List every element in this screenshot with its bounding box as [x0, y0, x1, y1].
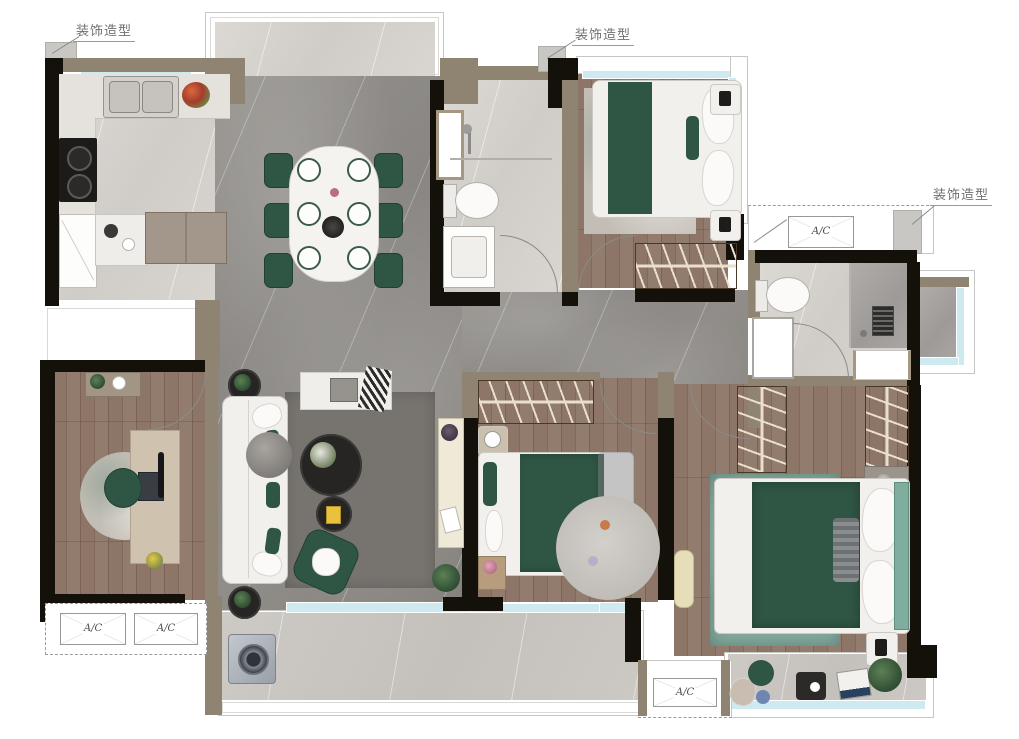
balcony-tray-cup: [810, 682, 820, 692]
shower-handle: [860, 330, 867, 337]
side-table-2-book: [326, 506, 341, 524]
bath1-sink: [451, 236, 487, 278]
balcony-laptop: [836, 668, 872, 700]
deco-annotation-2: 装饰造型: [572, 24, 634, 46]
master-nightstand-lamp: [875, 639, 887, 656]
master-headboard: [894, 482, 909, 630]
armchair-cushion: [312, 548, 340, 576]
bedroom1-window-top: [582, 70, 734, 79]
shower-glass-line: [849, 263, 851, 348]
bedroom2-toy-1: [600, 520, 610, 530]
balcony-knit-ball: [756, 690, 770, 704]
wall-bed2-north: [478, 372, 600, 380]
wall-study-top: [53, 360, 205, 372]
sofa-green-pillow-2: [266, 482, 280, 508]
bedroom2-pillow-white: [485, 510, 503, 552]
wall-master-corner-block: [907, 645, 937, 678]
stove-burner-1: [67, 146, 92, 171]
dining-chair-3: [264, 253, 293, 288]
ac-label-left-2: A/C: [155, 624, 177, 634]
bedroom2-lamp: [484, 431, 501, 448]
sideboard-tray: [330, 378, 358, 402]
deco-molding-3: [893, 210, 922, 254]
wall-bed2-master-tan: [658, 372, 674, 418]
toilet1-bowl: [455, 182, 499, 219]
study-lamp: [158, 452, 164, 498]
wall-bed2-west: [462, 418, 478, 602]
nightstand1-lamp: [719, 91, 731, 106]
balcony-bath-floor: [917, 287, 956, 357]
wall-balcony-left-pillar: [205, 596, 222, 715]
balcony-bath-ledge: [917, 277, 969, 287]
wall-bathroom1-top: [444, 66, 548, 80]
plate-2: [347, 158, 371, 182]
bathroom2-window: [853, 350, 911, 380]
bay-top-floor: [215, 22, 435, 78]
plate-3: [297, 202, 321, 226]
balcony-bath-glass-bottom: [917, 357, 959, 366]
wall-bath1-bed1-divider: [562, 80, 578, 292]
master-wardrobe-2: [865, 386, 909, 473]
sofa-seat-line: [248, 400, 249, 578]
kitchen-counter-bottom: [95, 214, 147, 266]
wall-bath1-bottom: [444, 292, 500, 306]
bedroom2-rug: [556, 496, 660, 600]
balcony-left-floor: [222, 612, 638, 700]
tv-console-plant: [441, 424, 458, 441]
balcony-left-outer-line: [222, 702, 640, 713]
duct-niche: [47, 308, 205, 362]
bedroom2-pillow-green: [483, 462, 497, 506]
study-console-plant: [90, 374, 105, 389]
wall-bed2-west-tan: [462, 372, 478, 418]
bedroom1-accent-pillow: [686, 116, 699, 160]
coffee-maker: [104, 224, 118, 238]
bathroom1-window: [436, 110, 464, 180]
ac-unit-bottom: A/C: [653, 678, 717, 707]
balcony-bath-glass-right: [956, 287, 965, 366]
kitchen-jar: [122, 238, 135, 251]
study-chair: [104, 468, 142, 508]
side-table-top-plant: [234, 374, 251, 391]
plate-5: [297, 246, 321, 270]
sofa-ottoman: [246, 432, 292, 478]
wall-entry-pillar: [195, 300, 220, 368]
ac-recess-side-left: [638, 660, 647, 716]
wall-bed2-south-pillar: [625, 598, 641, 662]
nightstand2-lamp: [719, 217, 731, 232]
dining-deco-dot: [330, 188, 339, 197]
kitchen-sink-basin-right: [142, 81, 173, 113]
bathroom2-door-panel: [752, 317, 794, 379]
ac-unit-left-1: A/C: [60, 613, 126, 645]
dining-centerpiece: [322, 216, 344, 238]
bedroom2-wardrobe: [478, 380, 594, 424]
wall-bath2-top: [755, 250, 917, 263]
wall-corridor-pillar: [562, 292, 578, 306]
wall-bed2-master: [658, 418, 674, 600]
toilet2-bowl: [766, 277, 810, 313]
fruit-plate: [182, 82, 210, 108]
ac-recess-side-right: [721, 660, 730, 716]
plate-4: [347, 202, 371, 226]
ac-label-left-1: A/C: [82, 624, 104, 634]
side-table-bottom-plant: [234, 591, 251, 608]
shower-head-1: [462, 124, 472, 134]
ac-unit-left-2: A/C: [134, 613, 198, 645]
balcony-plant: [868, 658, 902, 692]
bedroom1-blanket-stripe: [608, 82, 652, 214]
shower-column: [872, 306, 894, 336]
washing-machine-drum: [238, 644, 269, 675]
wall-study-left: [40, 360, 55, 622]
wall-bay-right-pillar: [440, 58, 478, 104]
wall-study-living-divider: [205, 368, 218, 622]
plate-6: [347, 246, 371, 270]
living-floor-plant: [432, 564, 460, 592]
master-bench: [674, 550, 694, 608]
balcony-cushion-green: [748, 660, 774, 686]
bedroom2-toy-2: [588, 556, 598, 566]
ac-unit-right: A/C: [788, 216, 854, 248]
bath1-shelf: [450, 158, 552, 160]
wall-bed1-bottom: [635, 288, 735, 302]
kitchen-sink-basin-left: [109, 81, 140, 113]
wall-kitchen-left: [45, 74, 59, 306]
study-flowers: [146, 552, 163, 569]
ac-label-bottom: A/C: [674, 688, 696, 698]
bedroom1-wardrobe: [635, 243, 737, 289]
master-throw: [833, 518, 859, 582]
dining-chair-6: [374, 253, 403, 288]
wall-kitchen-top: [63, 58, 205, 72]
floor-plan: A/C: [0, 0, 1019, 739]
deco-annotation-3: 装饰造型: [930, 184, 992, 206]
bedroom2-flowers: [483, 560, 497, 574]
study-console-vase: [112, 376, 126, 390]
deco-annotation-1: 装饰造型: [73, 20, 135, 42]
ac-label-right: A/C: [810, 227, 832, 237]
coffee-table-flowers: [310, 442, 336, 468]
stove-burner-2: [67, 174, 92, 199]
kitchen-cabinet-wood: [145, 212, 227, 264]
plate-1: [297, 158, 321, 182]
